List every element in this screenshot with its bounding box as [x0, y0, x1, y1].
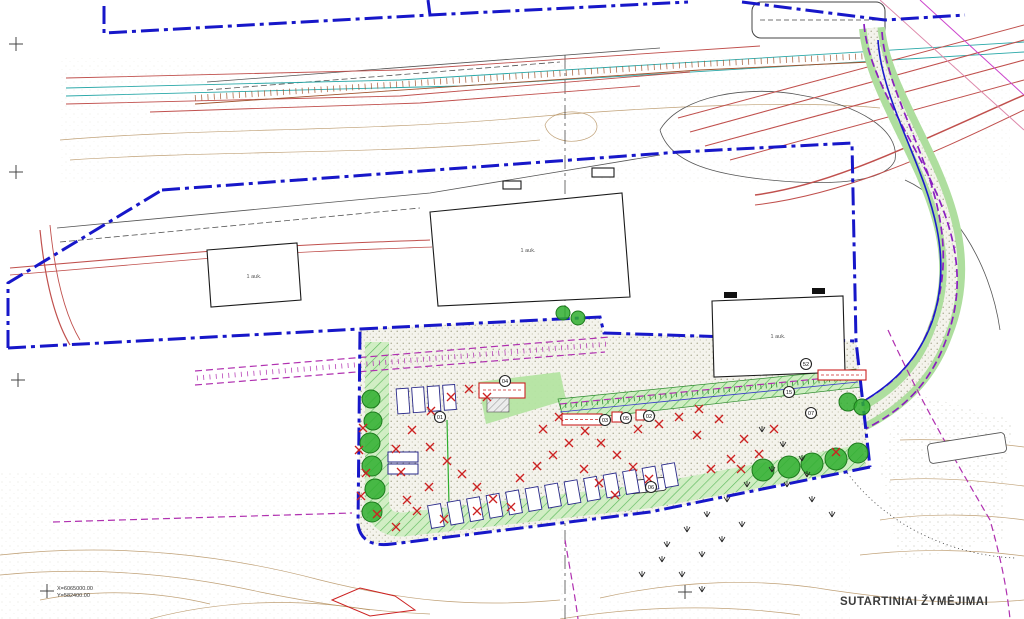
svg-text:06: 06: [648, 485, 654, 491]
parking-pad: [388, 464, 418, 474]
svg-text:04: 04: [502, 379, 508, 385]
svg-text:03: 03: [602, 418, 608, 424]
building-label: 1 auk.: [247, 274, 262, 280]
tree-symbol: [365, 479, 385, 499]
svg-text:05: 05: [623, 416, 629, 422]
svg-text:02: 02: [646, 414, 652, 420]
site-plan-canvas: 010403050206521507 1 auk.1 auk.1 auk. X=…: [0, 0, 1024, 619]
legend-title: SUTARTINIAI ŽYMĖJIMAI: [840, 595, 988, 608]
svg-text:01: 01: [437, 415, 443, 421]
tree-symbol: [556, 306, 570, 320]
tree-symbol: [848, 443, 868, 463]
svg-text:52: 52: [803, 362, 809, 368]
svg-text:15: 15: [786, 390, 792, 396]
parking-stall: [396, 388, 410, 414]
building-label: 1 auk.: [521, 248, 536, 254]
number-marker-07: 07: [806, 408, 817, 419]
number-marker-52: 52: [801, 359, 812, 370]
tree-symbol: [362, 390, 380, 408]
tree-symbol: [360, 433, 380, 453]
tree-symbol: [362, 456, 382, 476]
number-marker-01: 01: [435, 412, 446, 423]
tree-symbol: [801, 453, 823, 475]
number-marker-15: 15: [784, 387, 795, 398]
parking-stall: [412, 387, 426, 413]
tree-symbol: [854, 399, 870, 415]
parking-pad: [388, 452, 418, 462]
building-label: 1 auk.: [771, 334, 786, 340]
site-plan-page: 010403050206521507 1 auk.1 auk.1 auk. X=…: [0, 0, 1024, 619]
tree-symbol: [364, 412, 382, 430]
number-marker-03: 03: [600, 415, 611, 426]
number-marker-04: 04: [500, 376, 511, 387]
tree-symbol: [571, 311, 585, 325]
number-marker-05: 05: [621, 413, 632, 424]
coordinate-label-y: Y=582400.00: [57, 593, 90, 599]
number-marker-06: 06: [646, 482, 657, 493]
number-marker-02: 02: [644, 411, 655, 422]
tree-symbol: [778, 456, 800, 478]
coordinate-label-x: X=6065000.00: [57, 586, 93, 592]
parking-stall: [443, 385, 457, 411]
svg-text:07: 07: [808, 411, 814, 417]
